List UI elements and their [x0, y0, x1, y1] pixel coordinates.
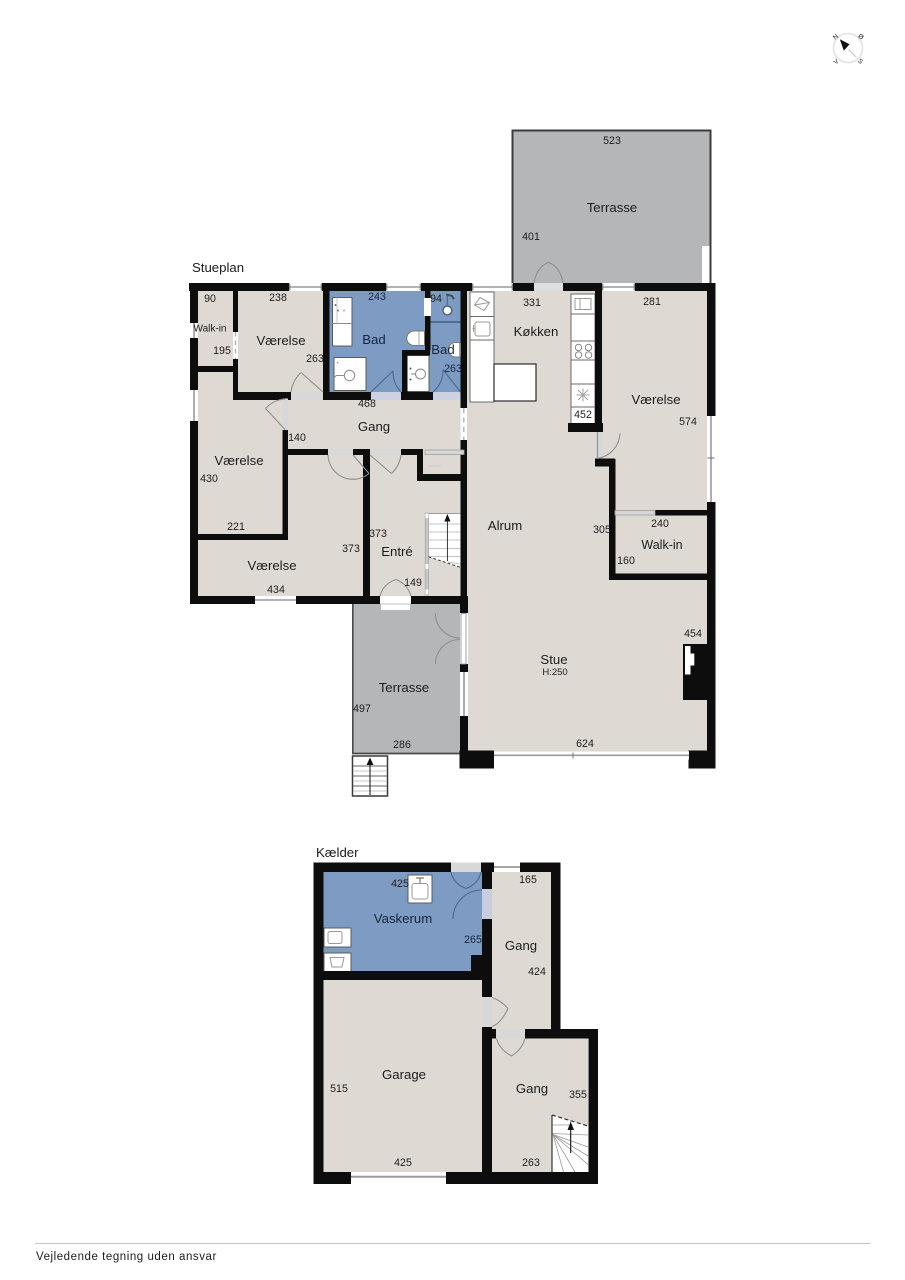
svg-text:140: 140	[288, 432, 306, 444]
svg-text:Gang: Gang	[505, 938, 537, 953]
svg-text:Vejledende tegning uden ansvar: Vejledende tegning uden ansvar	[36, 1251, 217, 1263]
svg-text:281: 281	[643, 296, 661, 308]
svg-text:94: 94	[430, 293, 442, 305]
svg-text:265: 265	[464, 934, 482, 946]
svg-text:454: 454	[684, 628, 702, 640]
svg-text:305: 305	[593, 524, 611, 536]
svg-text:425: 425	[391, 878, 409, 890]
svg-text:Terrasse: Terrasse	[379, 680, 430, 695]
svg-text:624: 624	[576, 738, 594, 750]
svg-text:515: 515	[330, 1083, 348, 1095]
svg-text:430: 430	[200, 473, 218, 485]
svg-text:Værelse: Værelse	[256, 333, 305, 348]
svg-text:Alrum: Alrum	[488, 518, 522, 533]
svg-text:243: 243	[368, 291, 386, 303]
svg-text:Bad: Bad	[431, 342, 454, 357]
svg-text:195: 195	[213, 345, 231, 357]
svg-text:434: 434	[267, 584, 285, 596]
svg-text:425: 425	[394, 1157, 412, 1169]
svg-text:Værelse: Værelse	[214, 453, 263, 468]
svg-text:263: 263	[306, 353, 324, 365]
svg-text:424: 424	[528, 966, 546, 978]
svg-text:Vaskerum: Vaskerum	[374, 911, 432, 926]
svg-text:574: 574	[679, 416, 697, 428]
svg-text:355: 355	[569, 1089, 587, 1101]
svg-text:401: 401	[522, 231, 540, 243]
svg-text:Gang: Gang	[358, 419, 390, 434]
svg-text:523: 523	[603, 135, 621, 147]
svg-text:H:250: H:250	[542, 667, 567, 678]
svg-text:Walk-in: Walk-in	[641, 538, 682, 552]
svg-text:149: 149	[404, 577, 422, 589]
svg-text:Gang: Gang	[516, 1081, 548, 1096]
svg-text:Bad: Bad	[362, 332, 385, 347]
svg-text:Køkken: Køkken	[514, 324, 559, 339]
svg-text:331: 331	[523, 297, 541, 309]
svg-text:160: 160	[617, 555, 635, 567]
svg-text:373: 373	[342, 543, 360, 555]
svg-text:Terrasse: Terrasse	[587, 200, 638, 215]
svg-text:165: 165	[519, 874, 537, 886]
svg-text:373: 373	[369, 528, 387, 540]
svg-text:Garage: Garage	[382, 1067, 426, 1082]
svg-text:Entré: Entré	[381, 544, 413, 559]
svg-text:Kælder: Kælder	[316, 845, 359, 860]
svg-text:90: 90	[204, 293, 216, 305]
svg-text:263: 263	[444, 363, 462, 375]
svg-text:286: 286	[393, 739, 411, 751]
svg-text:Værelse: Værelse	[631, 392, 680, 407]
svg-text:Walk-in: Walk-in	[194, 324, 227, 335]
svg-text:497: 497	[353, 703, 371, 715]
svg-text:Værelse: Værelse	[247, 558, 296, 573]
svg-text:452: 452	[574, 409, 592, 421]
svg-text:221: 221	[227, 521, 245, 533]
svg-text:Stueplan: Stueplan	[192, 260, 244, 275]
svg-text:238: 238	[269, 292, 287, 304]
svg-text:240: 240	[651, 518, 669, 530]
svg-text:Stue: Stue	[540, 652, 567, 667]
svg-text:468: 468	[358, 398, 376, 410]
svg-text:263: 263	[522, 1157, 540, 1169]
